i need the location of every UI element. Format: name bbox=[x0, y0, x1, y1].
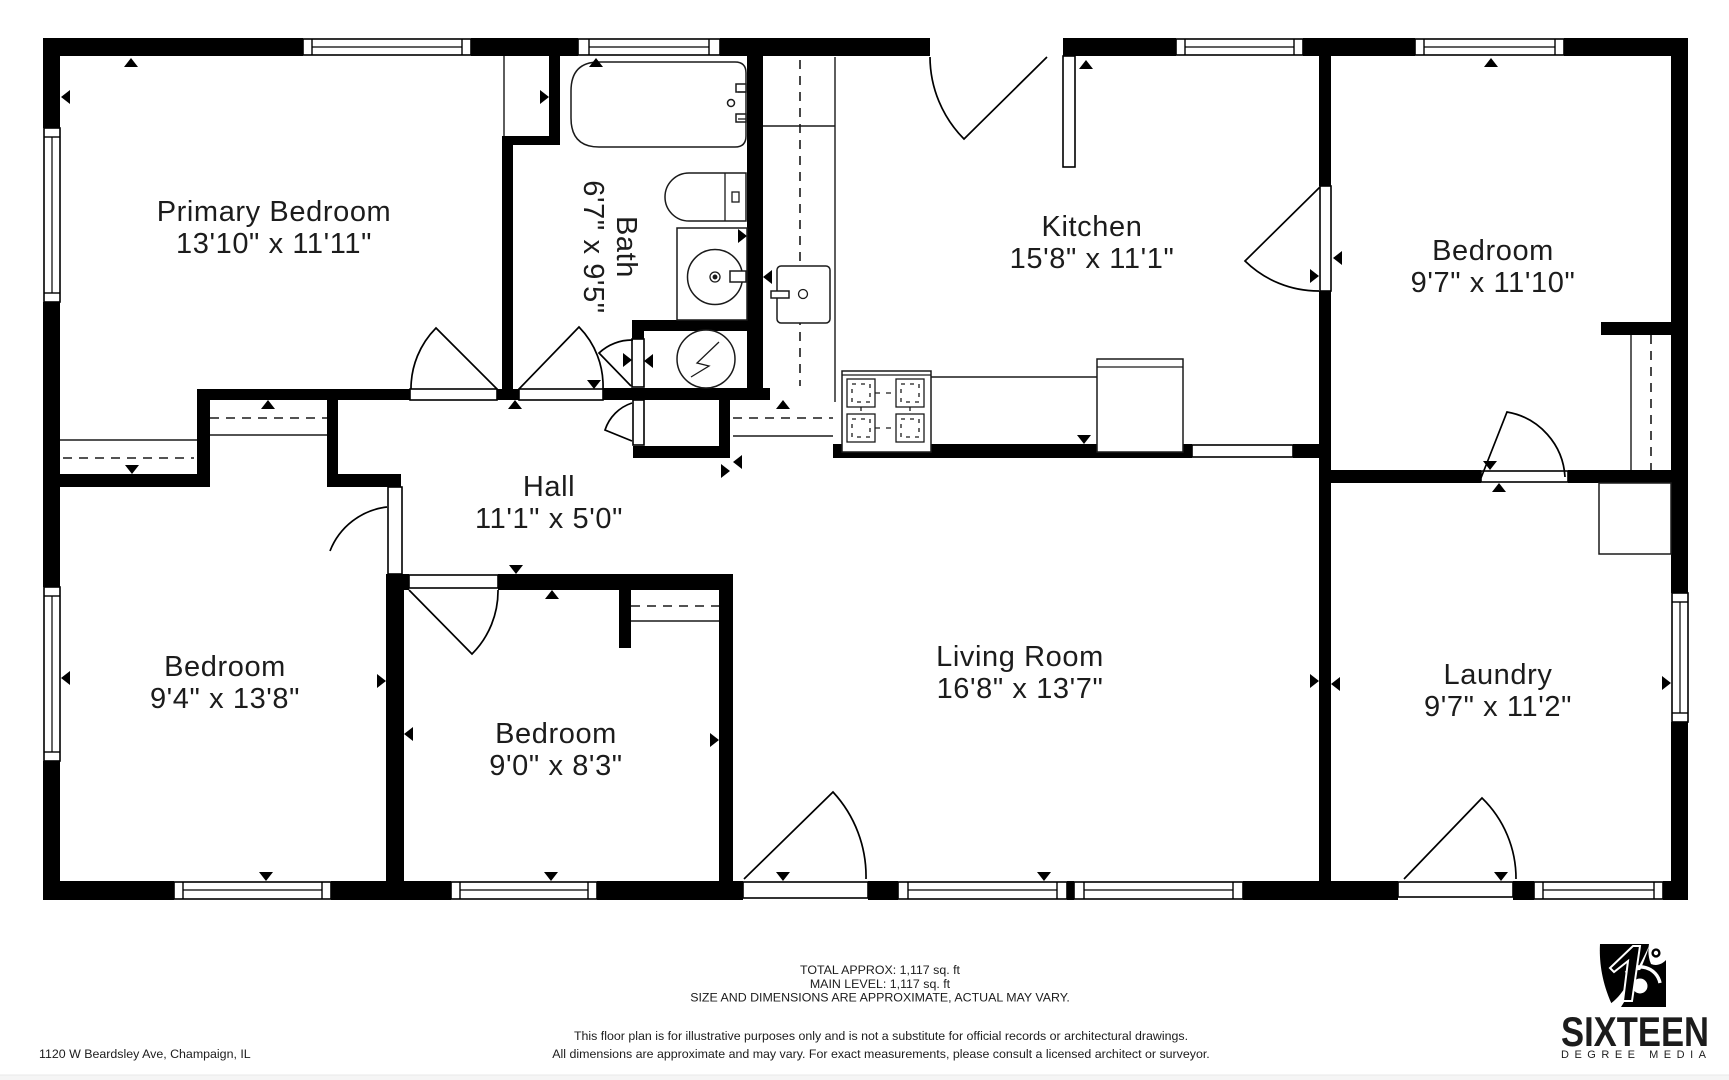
svg-text:All dimensions are approximate: All dimensions are approximate and may v… bbox=[552, 1047, 1209, 1061]
svg-text:9'4" x 13'8": 9'4" x 13'8" bbox=[150, 683, 300, 715]
svg-text:9'7" x 11'10": 9'7" x 11'10" bbox=[1411, 267, 1576, 299]
svg-text:Bedroom: Bedroom bbox=[495, 718, 617, 750]
svg-text:Bedroom: Bedroom bbox=[1432, 235, 1554, 267]
svg-text:This floor plan is for illustr: This floor plan is for illustrative purp… bbox=[574, 1029, 1188, 1043]
svg-text:15'8" x 11'1": 15'8" x 11'1" bbox=[1010, 243, 1175, 275]
svg-text:MAIN LEVEL: 1,117 sq. ft: MAIN LEVEL: 1,117 sq. ft bbox=[810, 977, 951, 991]
svg-text:6'7" x 9'5": 6'7" x 9'5" bbox=[577, 180, 609, 313]
svg-text:Bath: Bath bbox=[610, 216, 642, 278]
svg-text:Laundry: Laundry bbox=[1444, 659, 1553, 691]
svg-text:Kitchen: Kitchen bbox=[1042, 211, 1143, 243]
svg-text:Living Room: Living Room bbox=[936, 641, 1104, 673]
svg-text:9'0" x 8'3": 9'0" x 8'3" bbox=[489, 750, 622, 782]
svg-text:SIXTEEN: SIXTEEN bbox=[1561, 1008, 1709, 1055]
svg-text:SIZE AND DIMENSIONS ARE APPROX: SIZE AND DIMENSIONS ARE APPROXIMATE, ACT… bbox=[690, 991, 1070, 1005]
svg-text:16'8" x 13'7": 16'8" x 13'7" bbox=[937, 673, 1104, 705]
svg-text:1120 W Beardsley Ave, Champaig: 1120 W Beardsley Ave, Champaign, IL bbox=[39, 1047, 251, 1061]
svg-text:Bedroom: Bedroom bbox=[164, 651, 286, 683]
svg-text:9'7" x 11'2": 9'7" x 11'2" bbox=[1424, 691, 1572, 723]
svg-text:11'1" x 5'0": 11'1" x 5'0" bbox=[475, 503, 623, 535]
svg-text:13'10" x 11'11": 13'10" x 11'11" bbox=[176, 228, 372, 260]
svg-text:Primary Bedroom: Primary Bedroom bbox=[157, 196, 392, 228]
svg-text:Hall: Hall bbox=[523, 471, 575, 503]
svg-text:TOTAL APPROX: 1,117 sq. ft: TOTAL APPROX: 1,117 sq. ft bbox=[800, 963, 961, 977]
svg-text:DEGREE MEDIA: DEGREE MEDIA bbox=[1561, 1049, 1709, 1061]
